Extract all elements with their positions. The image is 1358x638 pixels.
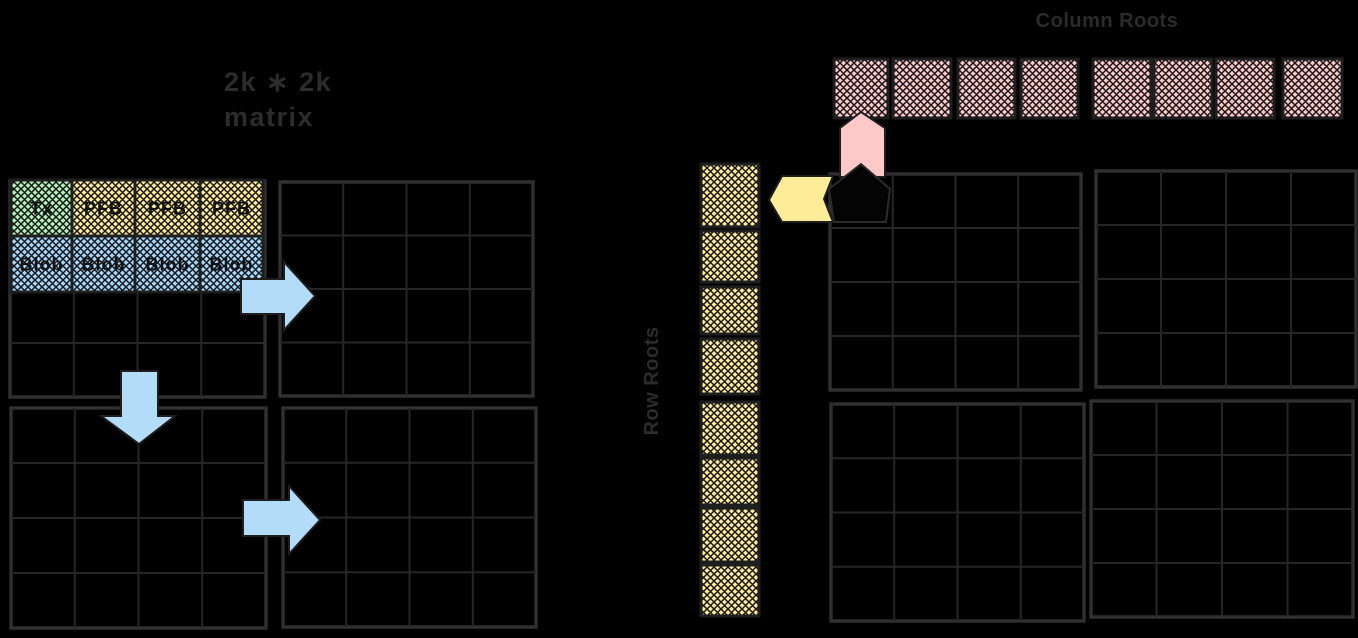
- svg-text:PFB: PFB: [148, 198, 187, 218]
- svg-text:2k ∗ 2k: 2k ∗ 2k: [224, 67, 332, 97]
- svg-text:PFB: PFB: [84, 198, 123, 218]
- svg-text:Blob: Blob: [20, 254, 64, 274]
- svg-text:Blob: Blob: [210, 254, 254, 274]
- svg-text:matrix: matrix: [224, 102, 314, 132]
- svg-text:Tx: Tx: [30, 198, 53, 218]
- svg-text:PFB: PFB: [212, 198, 251, 218]
- svg-text:Row Roots: Row Roots: [641, 327, 663, 436]
- svg-text:Blob: Blob: [146, 254, 190, 274]
- svg-text:Blob: Blob: [82, 254, 126, 274]
- svg-text:Column Roots: Column Roots: [1036, 10, 1179, 32]
